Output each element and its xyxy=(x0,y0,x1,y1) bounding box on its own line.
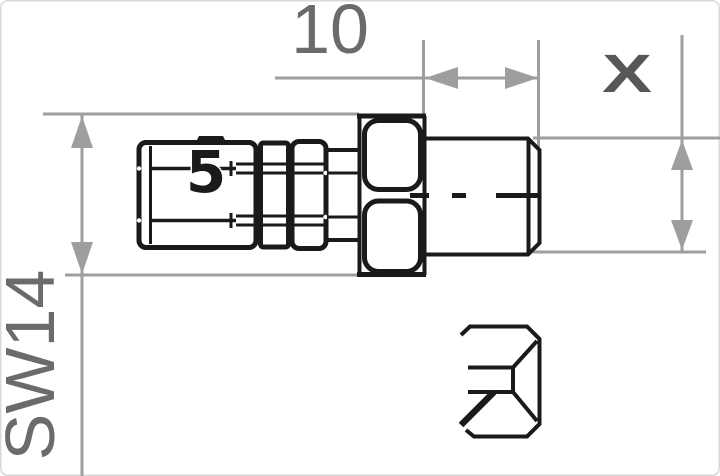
top-dimension-label: 10 xyxy=(291,0,369,68)
crimp-barrel xyxy=(261,143,289,247)
edge-dot xyxy=(137,218,141,222)
connector-body xyxy=(137,136,327,248)
arrowhead-up xyxy=(671,140,693,170)
symbol-flat-edge xyxy=(461,392,494,425)
body-marking-label: 5 xyxy=(186,138,226,206)
arrowhead-left xyxy=(425,67,458,89)
hex-face-lower xyxy=(365,201,421,272)
arrowhead-down xyxy=(71,242,93,274)
arrowhead-down xyxy=(671,220,693,250)
end-view-symbol xyxy=(461,327,540,437)
arrowhead-up xyxy=(71,116,93,148)
thread-top-edge xyxy=(425,139,540,151)
symbol-outline xyxy=(461,327,540,437)
left-dimension-label: SW14 xyxy=(0,270,69,461)
neck-section xyxy=(327,150,359,240)
edge-dot xyxy=(137,166,141,170)
thread-bottom-edge xyxy=(425,243,540,255)
arrowhead-right xyxy=(505,67,538,89)
crimp-ring xyxy=(292,142,326,249)
crimp-section xyxy=(261,142,328,249)
right-dimension-label: X xyxy=(602,44,652,104)
hex-face-upper xyxy=(365,121,421,190)
technical-drawing-canvas: 10 SW14 X xyxy=(0,0,720,476)
